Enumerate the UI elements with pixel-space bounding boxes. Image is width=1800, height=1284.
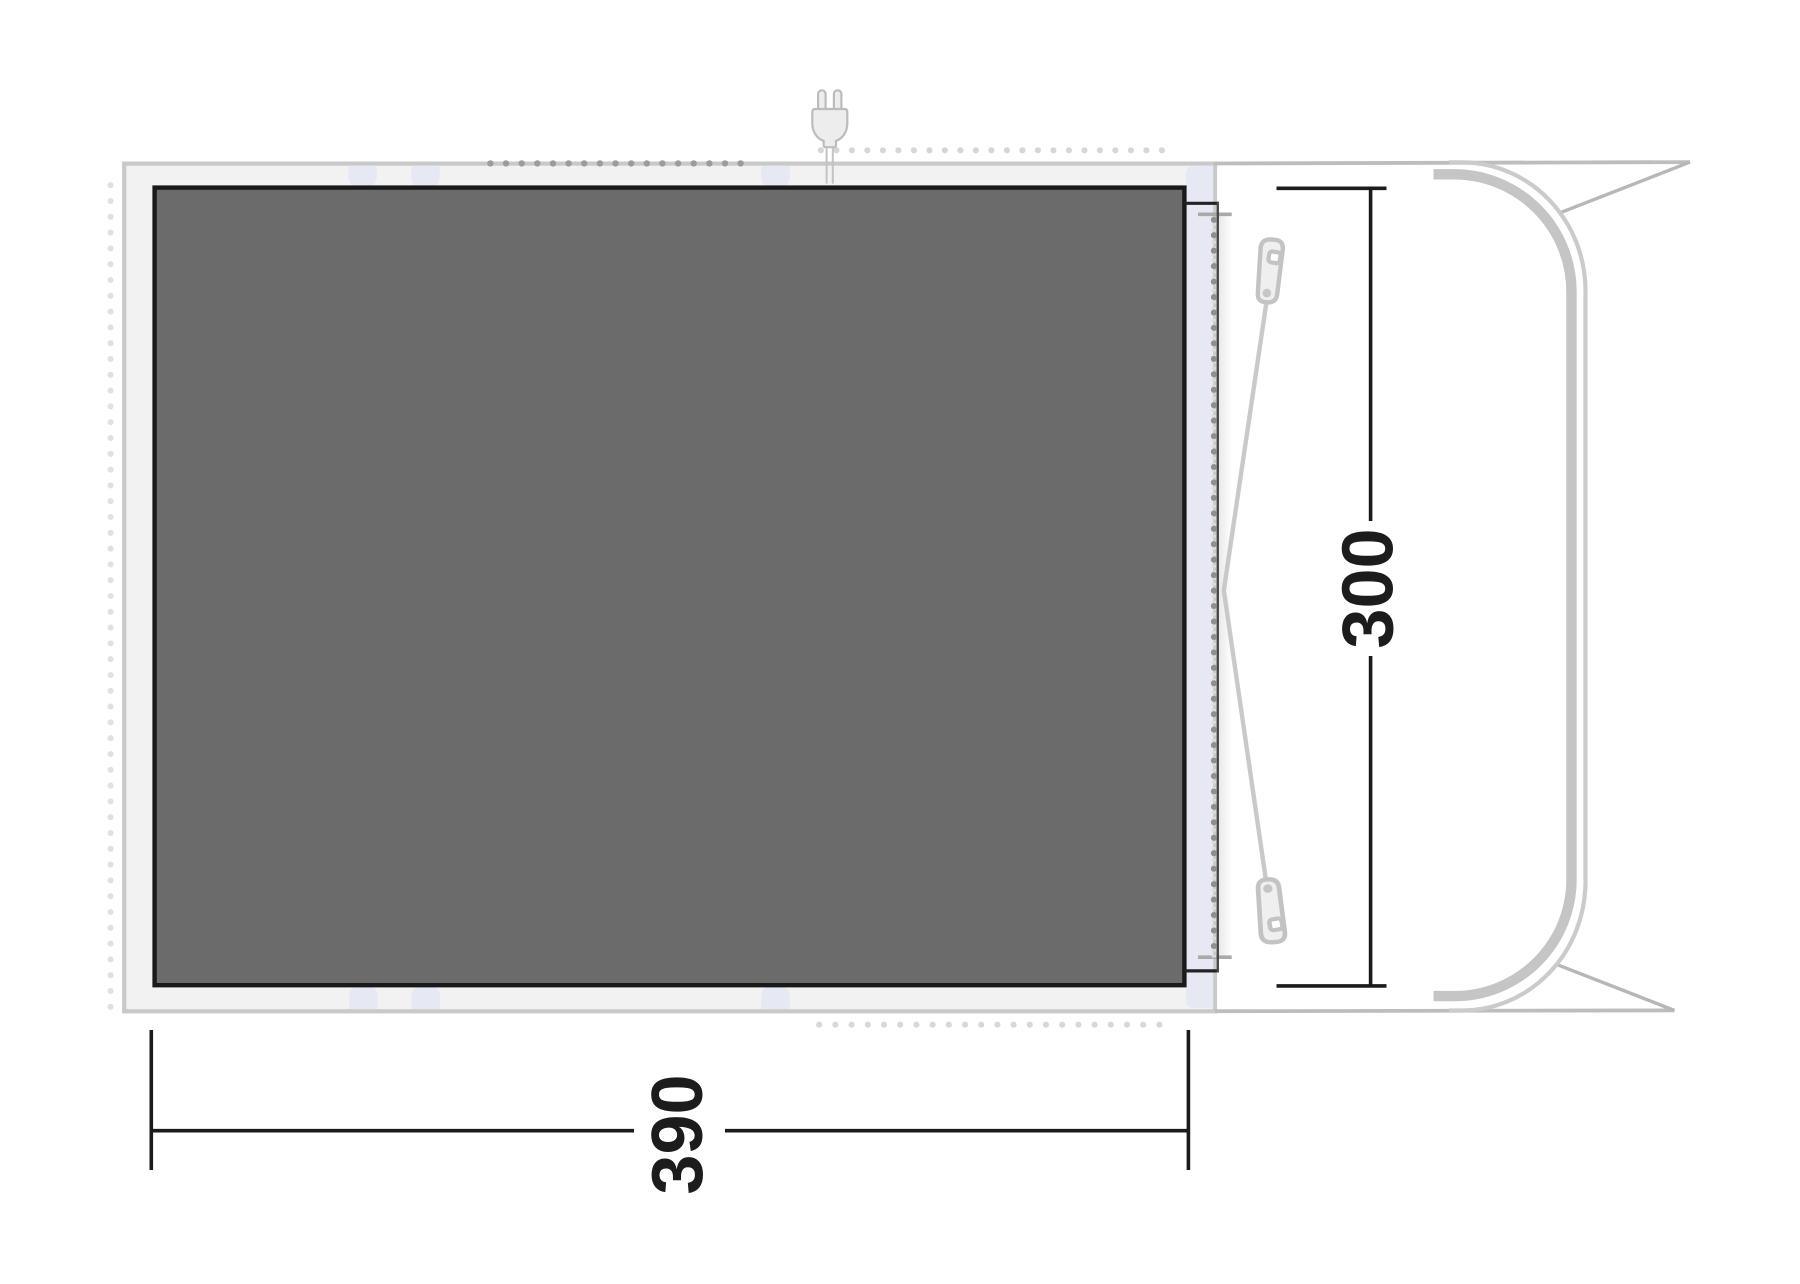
svg-text:390: 390 bbox=[638, 1074, 718, 1194]
svg-text:300: 300 bbox=[1329, 528, 1409, 648]
